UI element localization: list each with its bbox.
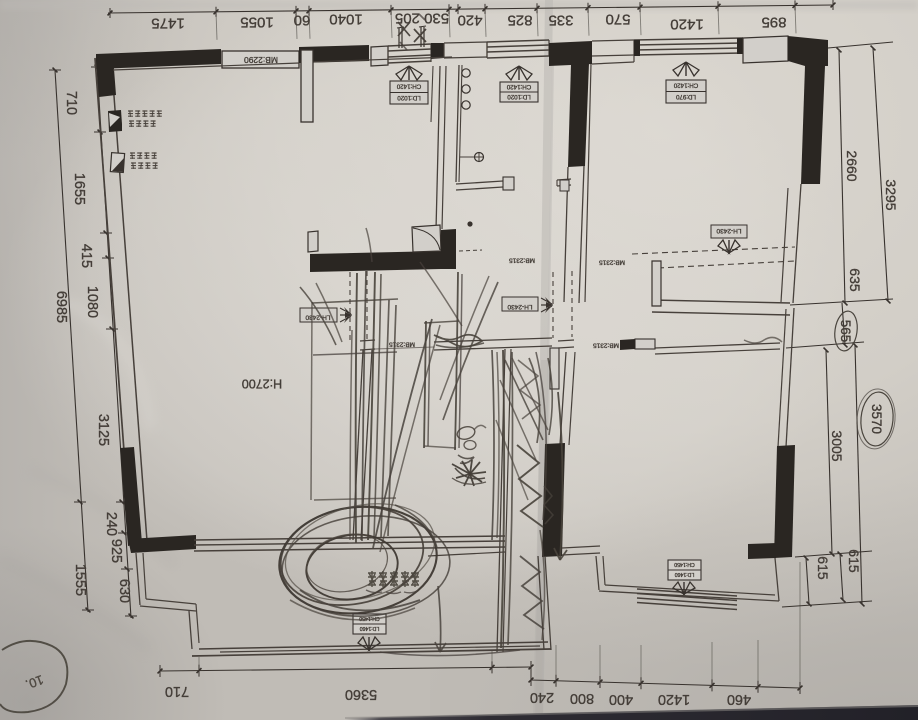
svg-text:LD:1020: LD:1020 (507, 93, 531, 100)
svg-text:1040: 1040 (329, 11, 362, 28)
svg-text:400: 400 (609, 691, 633, 707)
svg-text:710: 710 (165, 683, 189, 699)
svg-text:895: 895 (761, 14, 786, 31)
svg-text:2660: 2660 (844, 150, 860, 181)
svg-text:MB:2315: MB:2315 (599, 259, 625, 266)
svg-text:1555: 1555 (72, 564, 88, 596)
svg-text:630: 630 (116, 579, 132, 603)
svg-text:800: 800 (570, 690, 594, 706)
svg-text:LD:1460: LD:1460 (360, 625, 380, 631)
svg-text:3570: 3570 (869, 404, 884, 434)
svg-text:635: 635 (847, 268, 863, 292)
svg-text:3125: 3125 (95, 414, 111, 446)
svg-text:1080: 1080 (84, 286, 100, 318)
svg-text:CH:1420: CH:1420 (396, 83, 421, 90)
svg-text:1475: 1475 (151, 15, 184, 32)
svg-text:LD:970: LD:970 (675, 93, 696, 100)
svg-text:CH:1420: CH:1420 (506, 83, 531, 90)
svg-text:6985: 6985 (53, 291, 69, 323)
svg-text:925: 925 (108, 539, 124, 563)
svg-text:615: 615 (846, 549, 862, 573)
svg-text:710: 710 (63, 91, 79, 115)
svg-text:1655: 1655 (71, 173, 87, 205)
svg-text:LD:1020: LD:1020 (397, 94, 421, 101)
svg-text:3295: 3295 (883, 179, 899, 210)
svg-text:60: 60 (294, 12, 311, 29)
svg-text:335: 335 (548, 12, 573, 29)
svg-text:240: 240 (103, 512, 119, 536)
svg-text:825: 825 (507, 12, 532, 29)
svg-text:CH:1420: CH:1420 (673, 82, 698, 89)
svg-text:LH-2430: LH-2430 (507, 303, 532, 310)
svg-text:565: 565 (838, 320, 853, 343)
svg-text:615: 615 (815, 556, 831, 580)
svg-text:MB:2315: MB:2315 (509, 257, 535, 264)
svg-text:LH-2430: LH-2430 (716, 227, 741, 234)
svg-text:460: 460 (727, 691, 751, 707)
svg-text:240: 240 (530, 689, 554, 705)
svg-text:MB:2315: MB:2315 (389, 341, 415, 348)
svg-text:1055: 1055 (240, 14, 273, 31)
svg-text:H:2700: H:2700 (242, 377, 282, 391)
svg-text:570: 570 (605, 11, 630, 28)
svg-text:420: 420 (457, 12, 482, 29)
svg-text:1420: 1420 (670, 16, 703, 33)
svg-text:3005: 3005 (829, 430, 845, 461)
svg-text:415: 415 (78, 244, 94, 268)
svg-text:5360: 5360 (345, 686, 377, 702)
svg-text:LD:1460: LD:1460 (675, 571, 695, 577)
svg-text:LH-2430: LH-2430 (305, 314, 330, 321)
svg-text:MB:2315: MB:2315 (593, 342, 619, 349)
svg-text:1420: 1420 (658, 691, 690, 707)
svg-text:CH:1450: CH:1450 (674, 561, 695, 567)
